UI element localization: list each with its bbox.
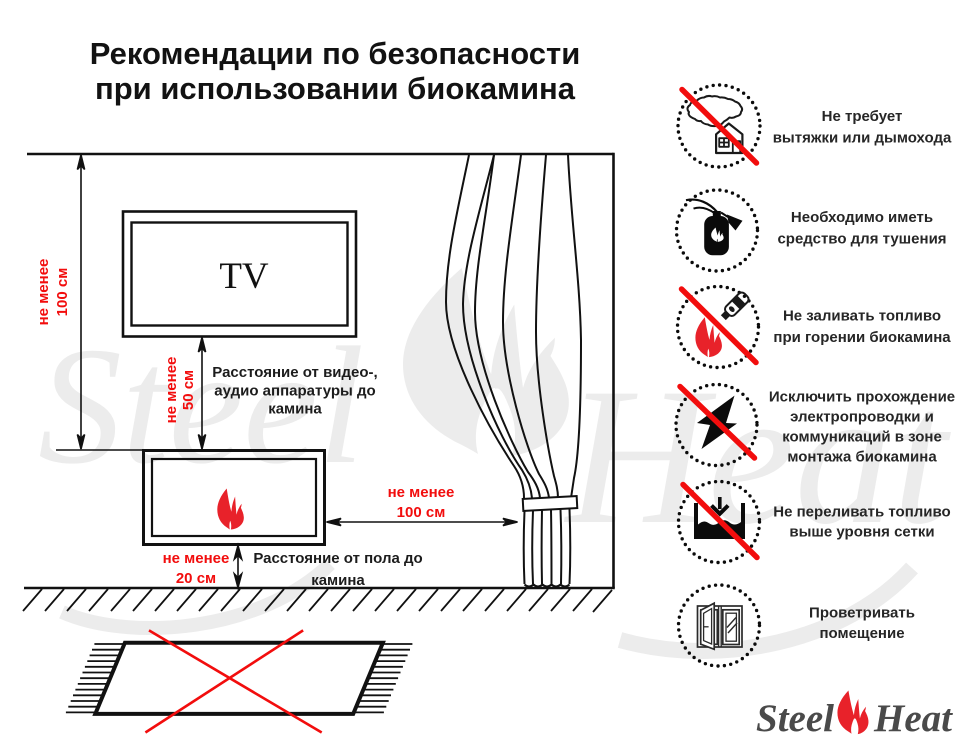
svg-text:Не переливать топливо: Не переливать топливо: [773, 504, 950, 521]
svg-text:вытяжки или дымохода: вытяжки или дымохода: [773, 130, 952, 147]
svg-text:выше уровня сетки: выше уровня сетки: [789, 524, 934, 541]
svg-text:не менее: не менее: [163, 357, 180, 424]
svg-text:Исключить прохождение: Исключить прохождение: [769, 389, 955, 406]
svg-text:не менее: не менее: [35, 259, 52, 326]
svg-text:100 см: 100 см: [397, 504, 446, 521]
svg-text:Не требует: Не требует: [822, 108, 903, 125]
svg-text:20 см: 20 см: [176, 570, 216, 587]
svg-text:Рекомендации по безопасности: Рекомендации по безопасности: [90, 36, 581, 71]
svg-text:монтажа биокамина: монтажа биокамина: [787, 449, 937, 466]
svg-text:Проветривать: Проветривать: [809, 605, 915, 622]
svg-text:Heat: Heat: [873, 697, 953, 740]
svg-text:50 см: 50 см: [180, 370, 197, 410]
svg-text:Расстояние от видео-,: Расстояние от видео-,: [212, 364, 377, 381]
svg-text:не менее: не менее: [163, 550, 230, 567]
svg-text:Необходимо иметь: Необходимо иметь: [791, 209, 933, 226]
svg-text:Не заливать топливо: Не заливать топливо: [783, 308, 941, 325]
svg-text:при использовании биокамина: при использовании биокамина: [95, 71, 576, 106]
svg-text:TV: TV: [219, 256, 269, 297]
svg-text:коммуникаций в зоне: коммуникаций в зоне: [782, 429, 942, 446]
svg-text:не менее: не менее: [388, 484, 455, 501]
svg-text:камина: камина: [268, 401, 322, 418]
svg-text:электропроводки и: электропроводки и: [790, 409, 934, 426]
svg-text:при горении биокамина: при горении биокамина: [773, 329, 951, 346]
svg-text:аудио аппаратуры до: аудио аппаратуры до: [214, 383, 375, 400]
svg-text:помещение: помещение: [819, 625, 904, 642]
svg-text:Расстояние от пола до: Расстояние от пола до: [253, 550, 422, 567]
svg-text:100 см: 100 см: [54, 268, 71, 317]
svg-text:средство для тушения: средство для тушения: [777, 231, 946, 248]
svg-text:камина: камина: [311, 572, 365, 589]
svg-text:Steel: Steel: [756, 697, 834, 740]
